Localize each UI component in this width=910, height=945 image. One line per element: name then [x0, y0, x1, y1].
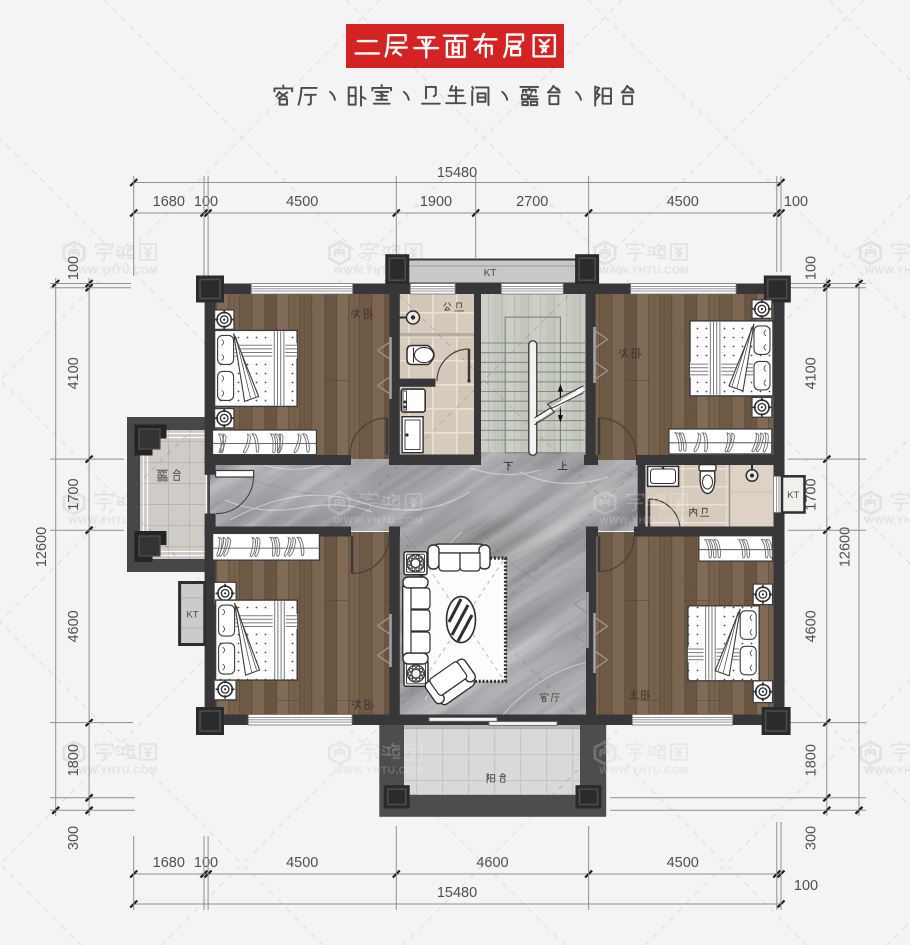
svg-text:100: 100 [194, 855, 218, 871]
svg-text:100: 100 [794, 878, 818, 894]
svg-text:12600: 12600 [838, 527, 854, 567]
svg-text:4100: 4100 [804, 357, 820, 389]
svg-text:4500: 4500 [286, 194, 318, 210]
svg-text:4600: 4600 [476, 855, 508, 871]
svg-text:300: 300 [804, 826, 820, 850]
svg-text:300: 300 [66, 826, 82, 850]
svg-text:1900: 1900 [420, 194, 452, 210]
svg-text:KT: KT [484, 268, 497, 279]
svg-text:4600: 4600 [66, 610, 82, 642]
svg-text:WWW.YHTU.COM: WWW.YHTU.COM [334, 766, 424, 777]
svg-text:100: 100 [784, 194, 808, 210]
svg-text:1800: 1800 [66, 744, 82, 776]
svg-text:WWW.YHTU.COM: WWW.YHTU.COM [599, 516, 689, 527]
svg-text:WWW.YHTU.COM: WWW.YHTU.COM [865, 266, 910, 277]
svg-text:WWW.YHTU.COM: WWW.YHTU.COM [865, 516, 910, 527]
svg-text:4600: 4600 [804, 610, 820, 642]
svg-text:WWW.YHTU.COM: WWW.YHTU.COM [599, 766, 689, 777]
svg-text:100: 100 [194, 194, 218, 210]
svg-text:1800: 1800 [804, 744, 820, 776]
svg-text:100: 100 [804, 256, 820, 280]
svg-text:1700: 1700 [804, 478, 820, 510]
svg-text:15480: 15480 [437, 165, 477, 181]
svg-text:1680: 1680 [153, 194, 185, 210]
svg-text:4100: 4100 [66, 357, 82, 389]
svg-text:WWW.YHTU.COM: WWW.YHTU.COM [865, 766, 910, 777]
svg-text:2700: 2700 [516, 194, 548, 210]
svg-text:KT: KT [186, 610, 198, 621]
svg-text:4500: 4500 [667, 194, 699, 210]
svg-text:WWW.YHTU.COM: WWW.YHTU.COM [599, 266, 689, 277]
svg-text:KT: KT [787, 490, 799, 501]
svg-text:WWW.YHTU.COM: WWW.YHTU.COM [334, 516, 424, 527]
svg-text:4500: 4500 [667, 855, 699, 871]
svg-text:100: 100 [66, 256, 82, 280]
svg-text:4500: 4500 [286, 855, 318, 871]
svg-text:1700: 1700 [66, 478, 82, 510]
svg-text:12600: 12600 [34, 527, 50, 567]
svg-text:15480: 15480 [437, 885, 477, 901]
svg-text:1680: 1680 [153, 855, 185, 871]
